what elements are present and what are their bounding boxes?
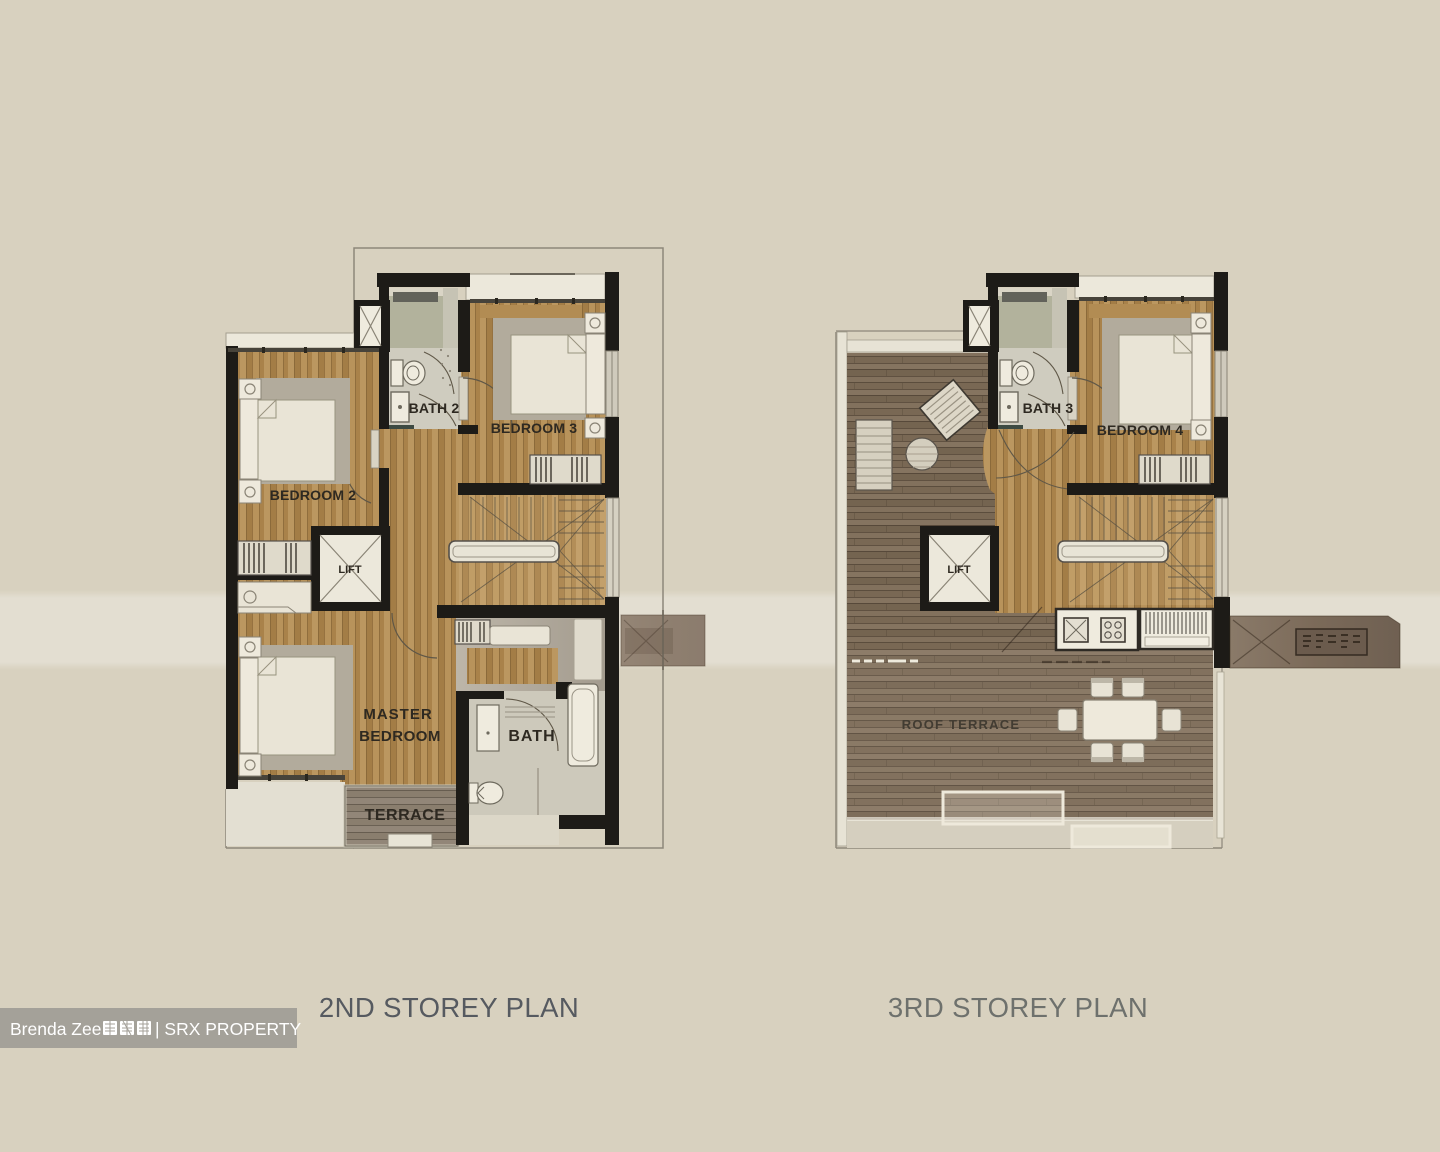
svg-text:Brenda Zee: Brenda Zee [10,1019,101,1039]
svg-text:BEDROOM 2: BEDROOM 2 [270,487,357,503]
svg-text:BATH 2: BATH 2 [409,400,460,416]
svg-text:LIFT: LIFT [338,564,361,576]
svg-text:BATH 3: BATH 3 [1023,400,1074,416]
svg-text:BEDROOM 3: BEDROOM 3 [491,420,578,436]
svg-text:TERRACE: TERRACE [365,807,446,824]
svg-text:MASTER: MASTER [363,706,432,723]
svg-text:BEDROOM 4: BEDROOM 4 [1097,422,1184,438]
svg-text:ROOF TERRACE: ROOF TERRACE [902,717,1020,732]
svg-text:LIFT: LIFT [947,564,970,576]
svg-text:3RD STOREY PLAN: 3RD STOREY PLAN [888,992,1148,1023]
svg-text:BATH: BATH [508,728,555,745]
svg-text:| SRX PROPERTY: | SRX PROPERTY [155,1019,302,1039]
svg-text:2ND STOREY PLAN: 2ND STOREY PLAN [319,992,579,1023]
svg-text:BEDROOM: BEDROOM [359,728,441,745]
